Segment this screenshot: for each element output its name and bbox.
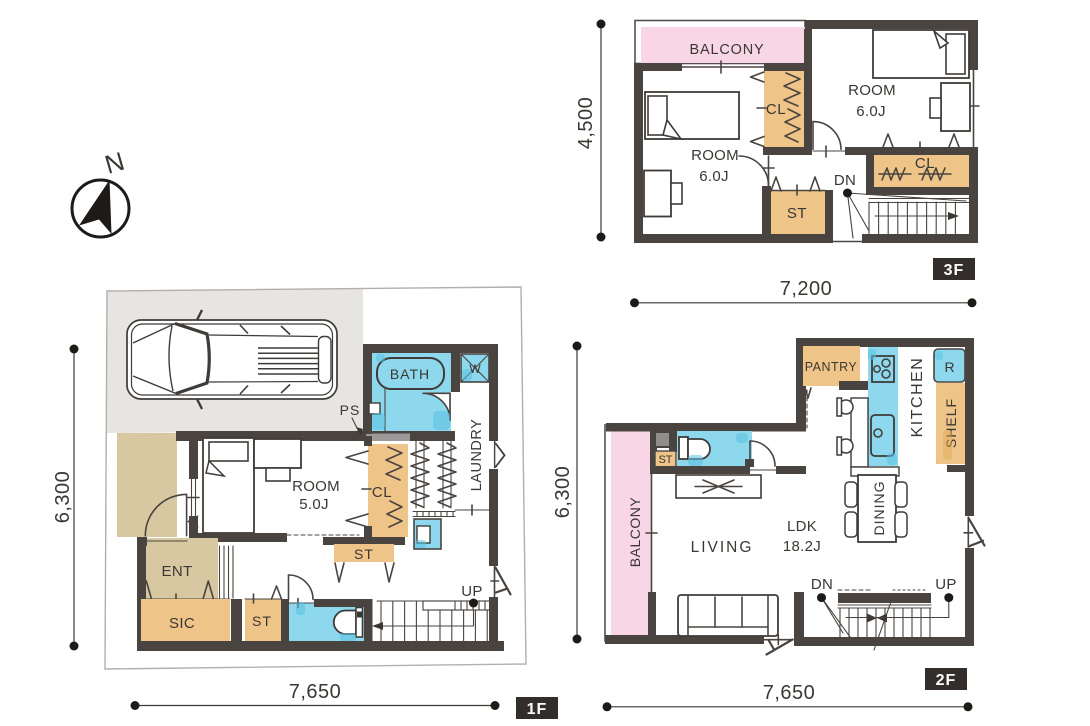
svg-text:ST: ST [658, 454, 672, 466]
svg-text:BATH: BATH [390, 366, 430, 382]
svg-text:LIVING: LIVING [691, 539, 754, 556]
svg-text:ST: ST [252, 613, 272, 629]
svg-text:3F: 3F [944, 262, 965, 279]
svg-text:2F: 2F [936, 672, 957, 689]
svg-text:BALCONY: BALCONY [690, 42, 765, 58]
svg-text:7,650: 7,650 [763, 682, 816, 704]
svg-text:LDK: LDK [787, 518, 817, 535]
svg-text:4,500: 4,500 [575, 97, 597, 150]
svg-text:7,200: 7,200 [780, 278, 833, 300]
svg-text:PANTRY: PANTRY [805, 360, 858, 374]
svg-text:DN: DN [834, 172, 856, 189]
svg-text:18.2J: 18.2J [783, 538, 821, 555]
svg-text:CL: CL [766, 101, 786, 118]
svg-text:LAUNDRY: LAUNDRY [469, 419, 485, 492]
svg-text:ENT: ENT [162, 563, 193, 580]
svg-text:ROOM: ROOM [848, 82, 896, 99]
svg-text:CL: CL [372, 484, 392, 501]
svg-text:ST: ST [787, 205, 807, 222]
svg-text:UP: UP [461, 583, 482, 600]
svg-text:6.0J: 6.0J [856, 103, 886, 120]
svg-text:5.0J: 5.0J [299, 496, 329, 513]
svg-text:7,650: 7,650 [289, 681, 342, 703]
svg-text:1F: 1F [527, 701, 548, 718]
svg-text:R: R [944, 359, 955, 375]
svg-text:6,300: 6,300 [552, 466, 574, 519]
svg-text:SIC: SIC [169, 615, 195, 632]
svg-text:ST: ST [354, 546, 374, 562]
svg-text:BALCONY: BALCONY [627, 497, 643, 568]
svg-text:DINING: DINING [871, 481, 887, 536]
svg-text:UP: UP [935, 576, 956, 593]
svg-text:KITCHEN: KITCHEN [909, 357, 926, 438]
svg-text:ROOM: ROOM [691, 147, 739, 164]
svg-text:6.0J: 6.0J [699, 168, 729, 185]
svg-text:CL: CL [915, 155, 935, 172]
svg-text:PS: PS [340, 402, 361, 418]
svg-text:ROOM: ROOM [292, 478, 340, 495]
svg-text:DN: DN [811, 576, 833, 593]
svg-text:6,300: 6,300 [52, 471, 74, 524]
